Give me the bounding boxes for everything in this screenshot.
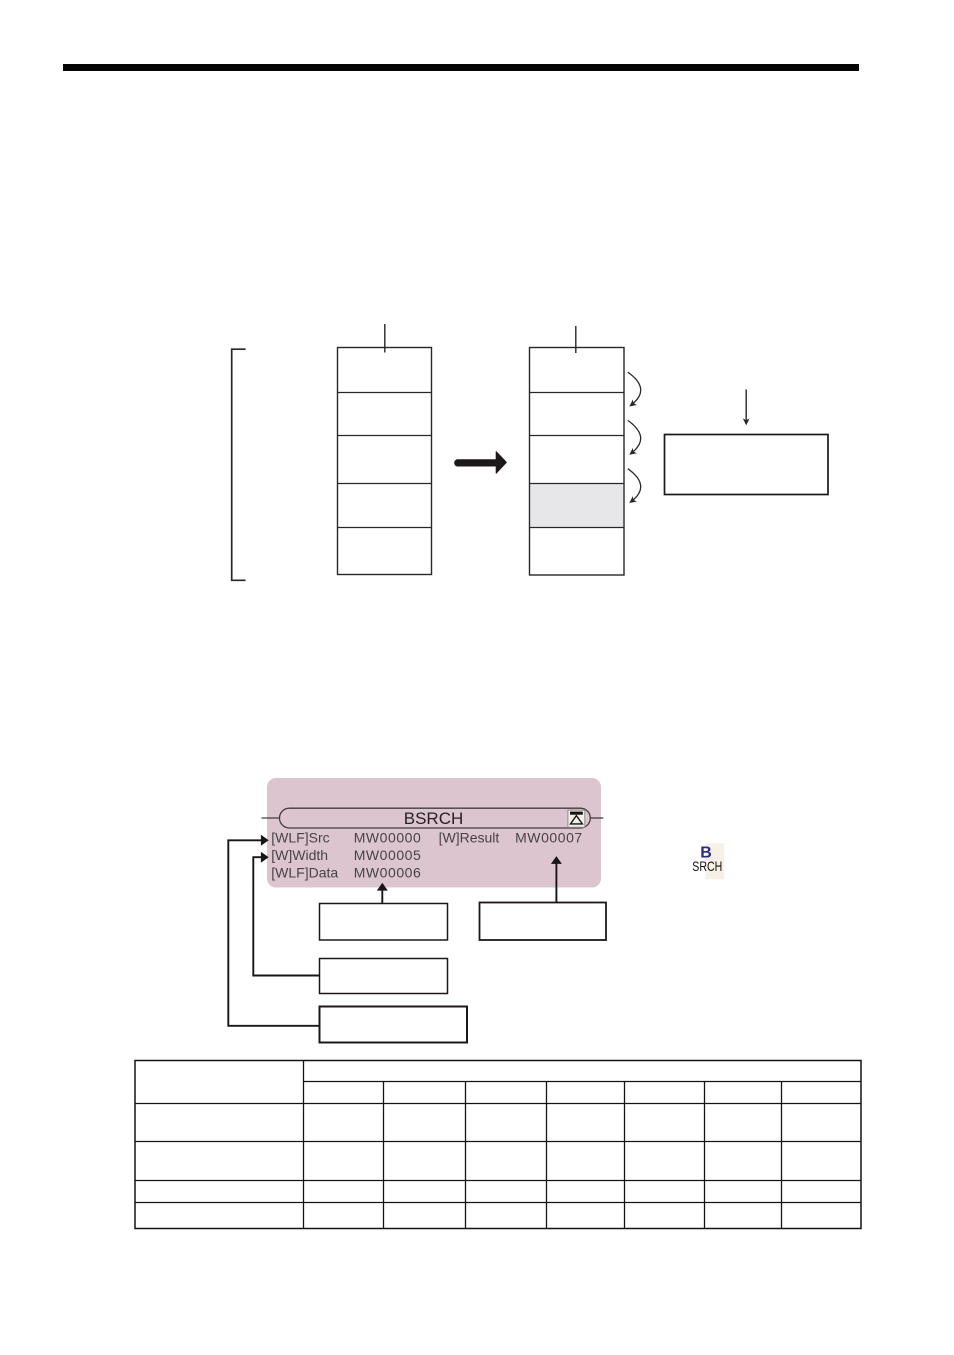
svg-text:[WLF]Data: [WLF]Data — [271, 865, 338, 881]
svg-text:SRCH: SRCH — [692, 858, 722, 874]
svg-text:MW00006: MW00006 — [354, 865, 422, 881]
svg-text:MW00005: MW00005 — [354, 847, 422, 863]
svg-text:[W]Result: [W]Result — [439, 830, 500, 846]
svg-text:[W]Width: [W]Width — [271, 847, 328, 863]
svg-text:BSRCH: BSRCH — [404, 809, 464, 828]
svg-text:MW00000: MW00000 — [354, 830, 422, 846]
svg-text:MW00007: MW00007 — [515, 830, 583, 846]
svg-text:[WLF]Src: [WLF]Src — [271, 830, 329, 846]
